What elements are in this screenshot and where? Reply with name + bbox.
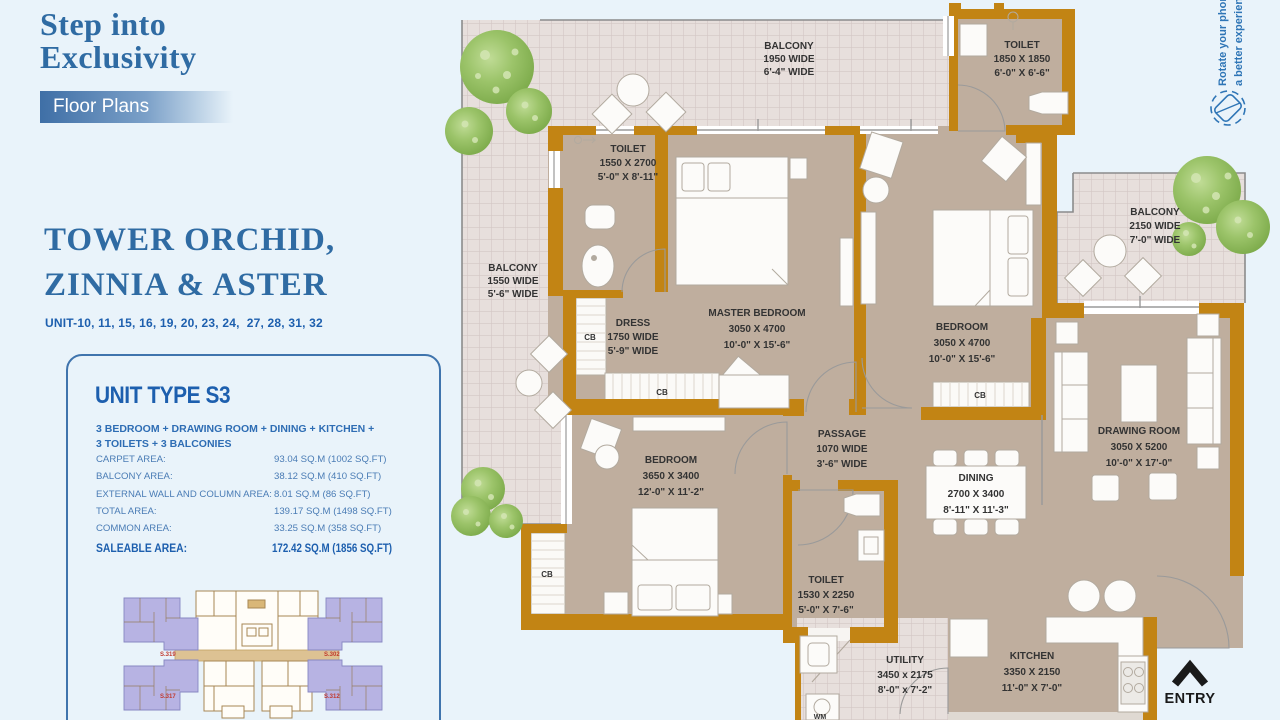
svg-text:BEDROOM3050 X 470010'-0" X 15': BEDROOM3050 X 470010'-0" X 15'-6"	[929, 322, 996, 365]
svg-text:BALCONY1550 WIDE5'-6" WIDE: BALCONY1550 WIDE5'-6" WIDE	[487, 263, 538, 300]
svg-text:BALCONY2150 WIDE7'-0" WIDE: BALCONY2150 WIDE7'-0" WIDE	[1129, 207, 1180, 246]
svg-text:CB: CB	[656, 388, 668, 397]
svg-text:BEDROOM3650 X 340012'-0" X 11': BEDROOM3650 X 340012'-0" X 11'-2"	[638, 455, 704, 498]
svg-text:BALCONY1950 WIDE6'-4" WIDE: BALCONY1950 WIDE6'-4" WIDE	[763, 41, 814, 78]
svg-text:WM: WM	[814, 714, 827, 720]
svg-text:PASSAGE1070 WIDE3'-6" WIDE: PASSAGE1070 WIDE3'-6" WIDE	[816, 429, 867, 470]
svg-text:ENTRY: ENTRY	[1164, 691, 1215, 707]
svg-text:KITCHEN3350 X 215011'-0" X 7'-: KITCHEN3350 X 215011'-0" X 7'-0"	[1002, 651, 1063, 694]
svg-text:CB: CB	[541, 570, 553, 579]
svg-text:CB: CB	[974, 391, 986, 400]
svg-text:CB: CB	[584, 333, 596, 342]
